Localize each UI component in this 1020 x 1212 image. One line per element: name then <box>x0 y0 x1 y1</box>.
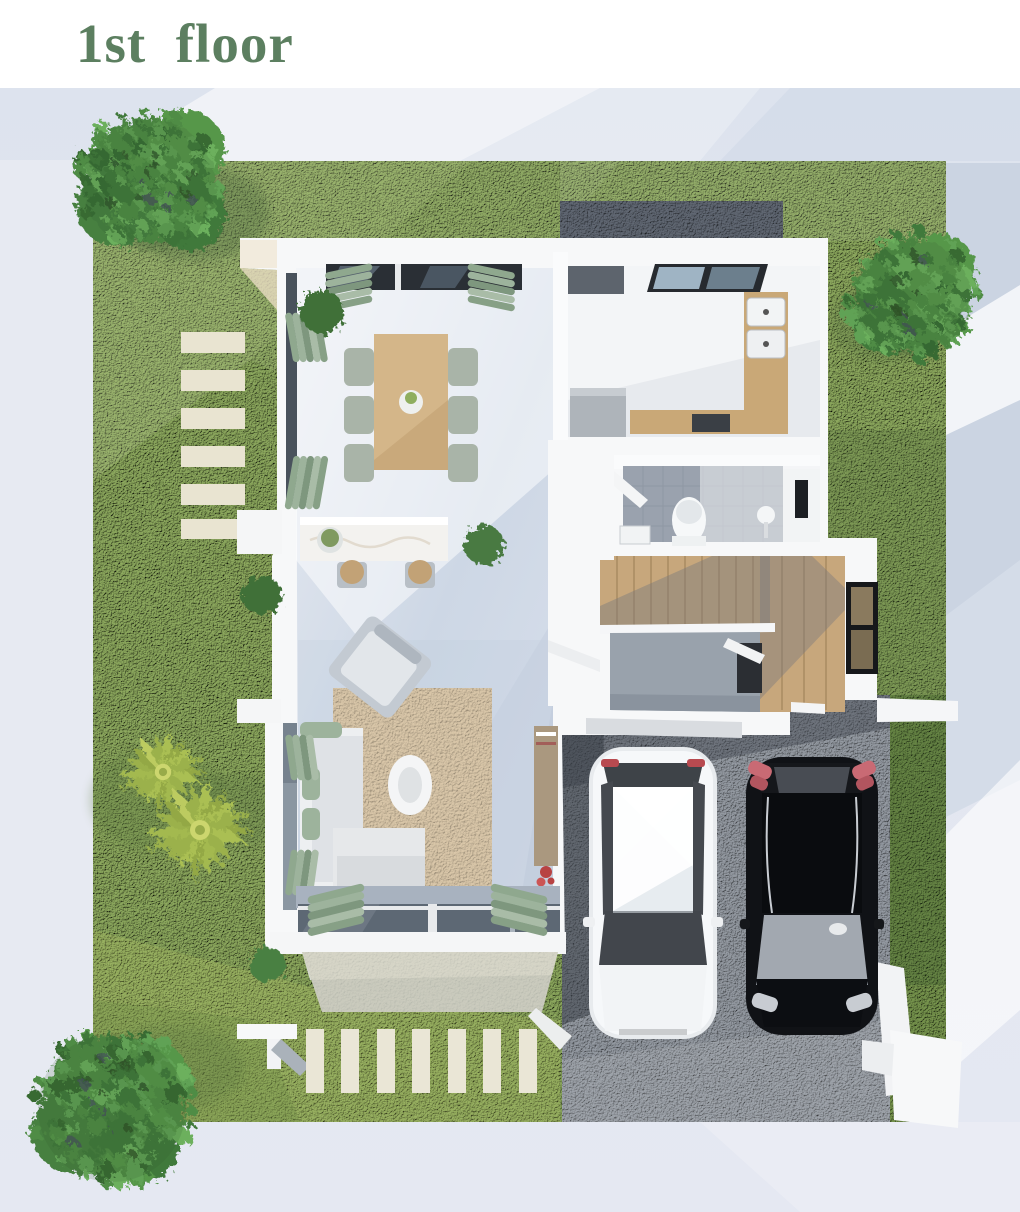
svg-text:1st floor: 1st floor <box>76 13 294 74</box>
